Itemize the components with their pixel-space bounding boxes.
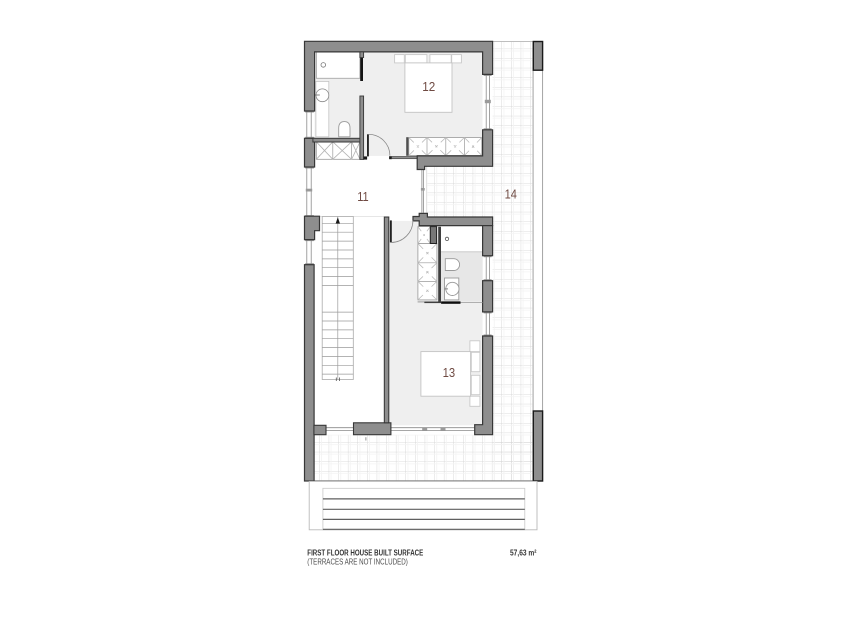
- svg-text:14: 14: [505, 187, 517, 201]
- svg-text:13: 13: [443, 366, 456, 380]
- svg-text:FIRST FLOOR HOUSE BUILT SURFAC: FIRST FLOOR HOUSE BUILT SURFACE: [307, 548, 423, 557]
- svg-text:12: 12: [422, 80, 435, 94]
- svg-text:(TERRACES ARE NOT INCLUDED): (TERRACES ARE NOT INCLUDED): [307, 558, 408, 567]
- svg-text:57,63 m²: 57,63 m²: [510, 548, 537, 557]
- svg-text:11: 11: [357, 190, 369, 204]
